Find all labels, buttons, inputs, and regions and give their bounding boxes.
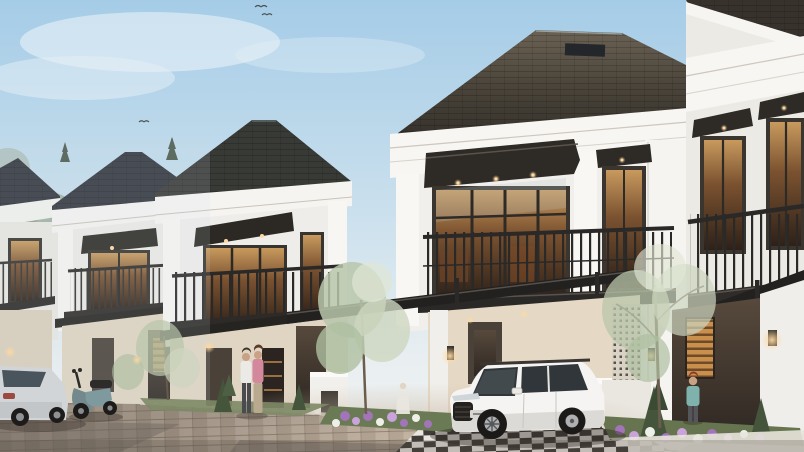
townhouse-render [0, 0, 804, 452]
foreground-vignette [0, 440, 804, 452]
person-pink-top [253, 345, 264, 414]
wall-lantern-right [761, 329, 783, 351]
roof-skylight [565, 43, 605, 56]
person-white-shirt [241, 348, 252, 414]
